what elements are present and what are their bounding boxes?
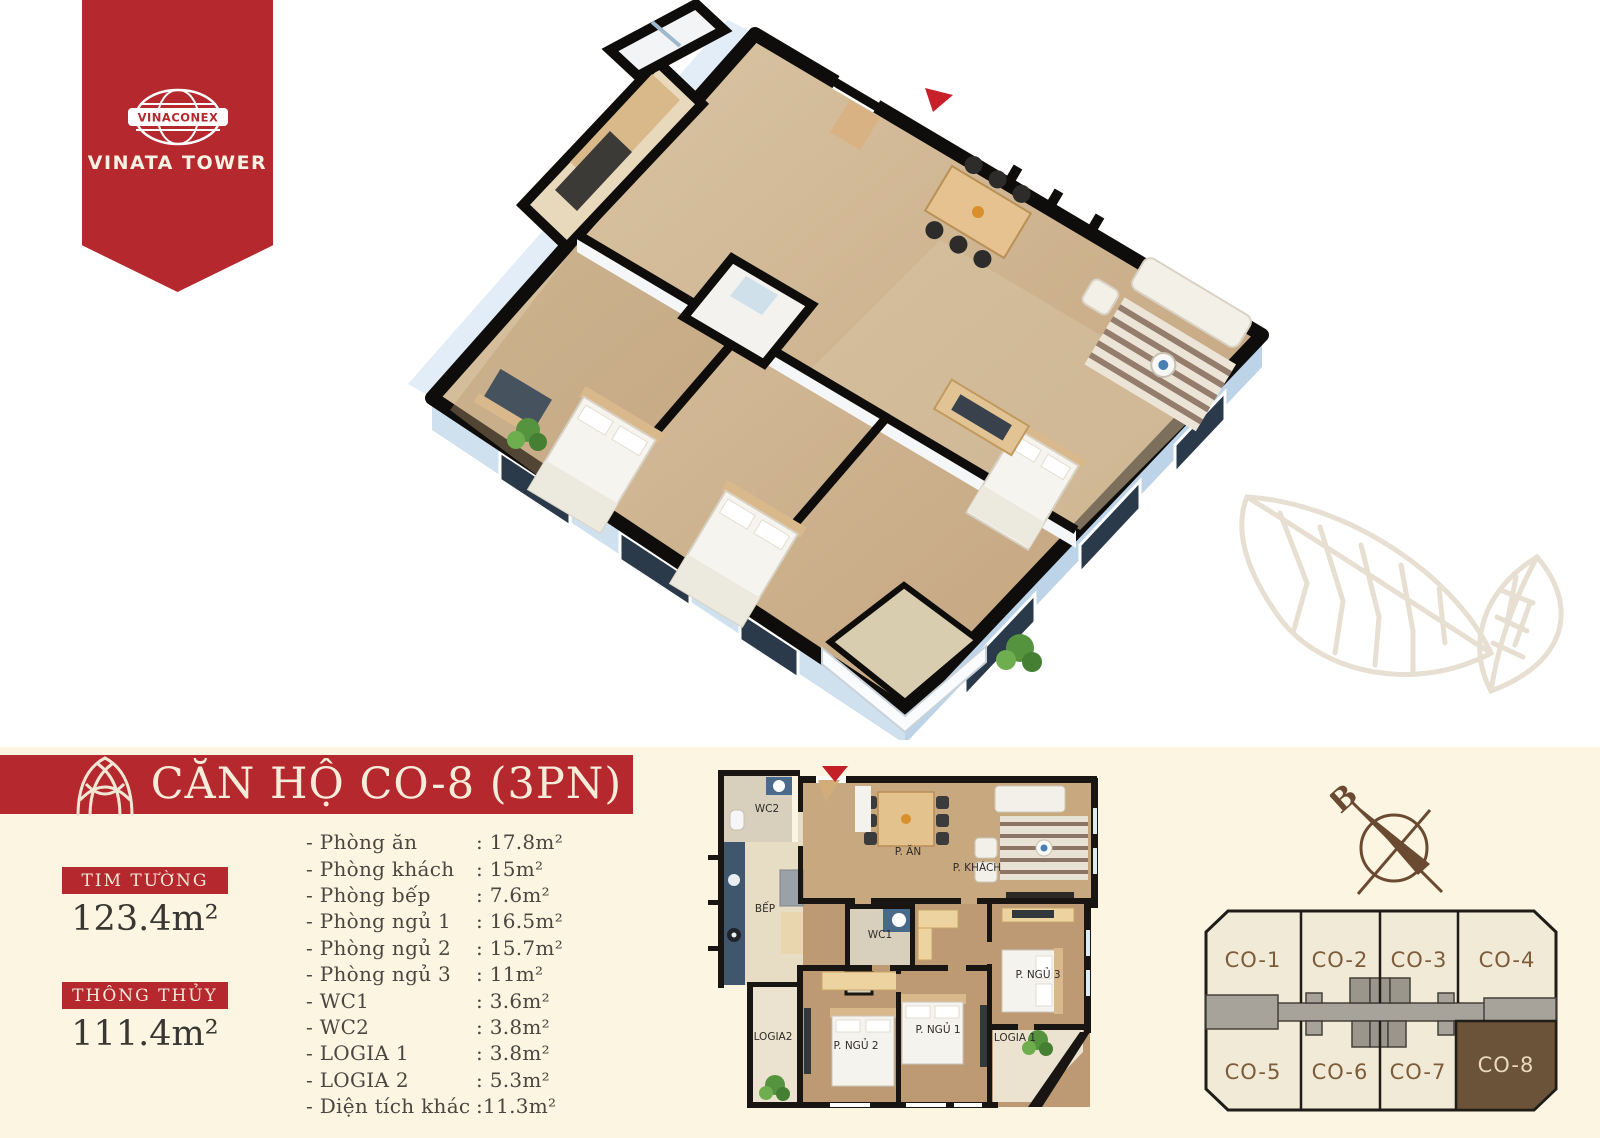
unit-label-co7: CO-7 [1390, 1060, 1447, 1084]
room-area: : 5.3m² [476, 1068, 550, 1092]
tower-arch-icon [70, 754, 140, 816]
room-row: - Diện tích khác:11.3m² [306, 1093, 626, 1119]
room-row: - Phòng bếp: 7.6m² [306, 882, 626, 908]
room-row: - Phòng ngủ 2: 15.7m² [306, 935, 626, 961]
room-label: - Phòng ngủ 1 [306, 909, 476, 933]
room-area: : 3.8m² [476, 1041, 550, 1065]
label-ngu1: P. NGỦ 1 [915, 1022, 960, 1036]
unit-label-co8: CO-8 [1478, 1053, 1535, 1077]
unit-label-co2: CO-2 [1312, 948, 1369, 972]
room-area: : 3.8m² [476, 1015, 550, 1039]
brand-ribbon: VINACONEX VINATA TOWER [82, 0, 273, 292]
floorplan-3d [380, 0, 1300, 740]
room-area: : 11m² [476, 962, 543, 986]
dining-set-2d [864, 792, 949, 846]
room-area: : 7.6m² [476, 883, 550, 907]
label-ngu3: P. NGỦ 3 [1015, 967, 1060, 981]
room-label: - Phòng ngủ 2 [306, 936, 476, 960]
room-row: - LOGIA 2: 5.3m² [306, 1067, 626, 1093]
floorplan-2d: WC2 BẾP P. ĂN P. KHÁCH WC1 P. NGỦ 2 P. N… [650, 750, 1110, 1125]
room-row: - Phòng ngủ 1: 16.5m² [306, 908, 626, 934]
label-wc1: WC1 [868, 929, 892, 941]
unit-label-co5: CO-5 [1225, 1060, 1282, 1084]
room-label: - LOGIA 2 [306, 1068, 476, 1092]
unit-label-co1: CO-1 [1225, 948, 1282, 972]
room-label: - Phòng bếp [306, 883, 476, 907]
room-row: - Phòng khách: 15m² [306, 855, 626, 881]
room-area: : 15m² [476, 857, 543, 881]
room-label: - Phòng ngủ 3 [306, 962, 476, 986]
vinaconex-logo-text: VINACONEX [138, 111, 219, 125]
apartment-title: CĂN HỘ CO-8 (3PN) [150, 755, 623, 814]
room-label: - Diện tích khác [306, 1094, 476, 1118]
label-an: P. ĂN [895, 845, 921, 858]
room-label: - WC2 [306, 1015, 476, 1039]
room-row: - Phòng ăn: 17.8m² [306, 829, 626, 855]
project-name: VINATA TOWER [82, 152, 273, 174]
vinaconex-globe-icon: VINACONEX [118, 82, 238, 152]
label-ngu2: P. NGỦ 2 [833, 1038, 878, 1052]
label-bep: BẾP [755, 901, 775, 915]
room-row: - Phòng ngủ 3: 11m² [306, 961, 626, 987]
room-label: - WC1 [306, 989, 476, 1013]
entry-counter [855, 786, 871, 832]
label-khach: P. KHÁCH [953, 861, 1001, 874]
tim-tuong-badge: TIM TƯỜNG [62, 867, 228, 894]
room-area-list: - Phòng ăn: 17.8m² - Phòng khách: 15m² -… [306, 829, 626, 1119]
compass-needle [1360, 808, 1430, 875]
brochure-page: VINACONEX VINATA TOWER [0, 0, 1600, 1138]
title-bar: CĂN HỘ CO-8 (3PN) [0, 755, 633, 814]
label-wc2: WC2 [755, 803, 779, 815]
thong-thuy-value: 111.4m² [38, 1014, 252, 1054]
compass-icon: B [1330, 770, 1470, 905]
label-logia1: LOGIA 1 [994, 1032, 1036, 1044]
room-label: - LOGIA 1 [306, 1041, 476, 1065]
compass-north-label: B [1330, 777, 1365, 820]
floor-key-plan: CO-1 CO-2 CO-3 CO-4 CO-5 CO-6 CO-7 CO-8 [1198, 898, 1570, 1120]
orientation-marker-icon [925, 88, 953, 112]
room-label: - Phòng khách [306, 857, 476, 881]
unit-label-co3: CO-3 [1391, 948, 1448, 972]
unit-label-co4: CO-4 [1479, 948, 1536, 972]
leaf-decoration-icon [1185, 455, 1575, 720]
tim-tuong-value: 123.4m² [38, 899, 252, 939]
thong-thuy-badge: THÔNG THỦY [62, 982, 228, 1009]
room-row: - WC2: 3.8m² [306, 1014, 626, 1040]
room-label: - Phòng ăn [306, 830, 476, 854]
unit-label-co6: CO-6 [1312, 1060, 1369, 1084]
room-area: : 17.8m² [476, 830, 563, 854]
room-row: - LOGIA 1: 3.8m² [306, 1040, 626, 1066]
room-area: : 16.5m² [476, 909, 563, 933]
room-area: : 3.6m² [476, 989, 550, 1013]
room-area: : 15.7m² [476, 936, 563, 960]
room-row: - WC1: 3.6m² [306, 987, 626, 1013]
label-logia2: LOGIA2 [754, 1031, 793, 1043]
room-area: :11.3m² [476, 1094, 556, 1118]
